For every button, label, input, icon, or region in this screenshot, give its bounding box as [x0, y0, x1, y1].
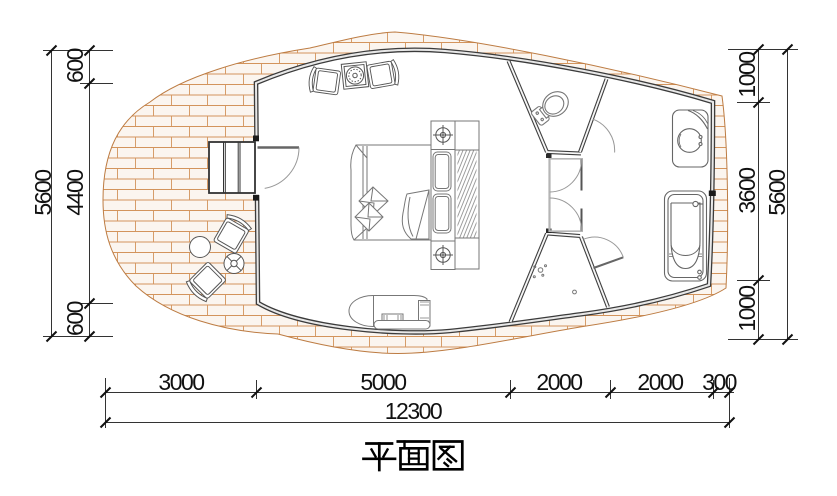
svg-text:3000: 3000 — [158, 369, 204, 395]
svg-text:5600: 5600 — [30, 170, 56, 216]
svg-text:600: 600 — [62, 301, 88, 336]
svg-text:1000: 1000 — [734, 52, 760, 98]
svg-text:2000: 2000 — [637, 369, 683, 395]
svg-text:5000: 5000 — [360, 369, 406, 395]
svg-text:4400: 4400 — [62, 170, 88, 216]
svg-text:3600: 3600 — [734, 168, 760, 214]
svg-text:12300: 12300 — [385, 398, 442, 424]
svg-text:5600: 5600 — [764, 170, 790, 216]
svg-text:1000: 1000 — [734, 286, 760, 332]
svg-text:2000: 2000 — [536, 369, 582, 395]
svg-text:300: 300 — [702, 369, 737, 395]
svg-text:600: 600 — [62, 48, 88, 83]
